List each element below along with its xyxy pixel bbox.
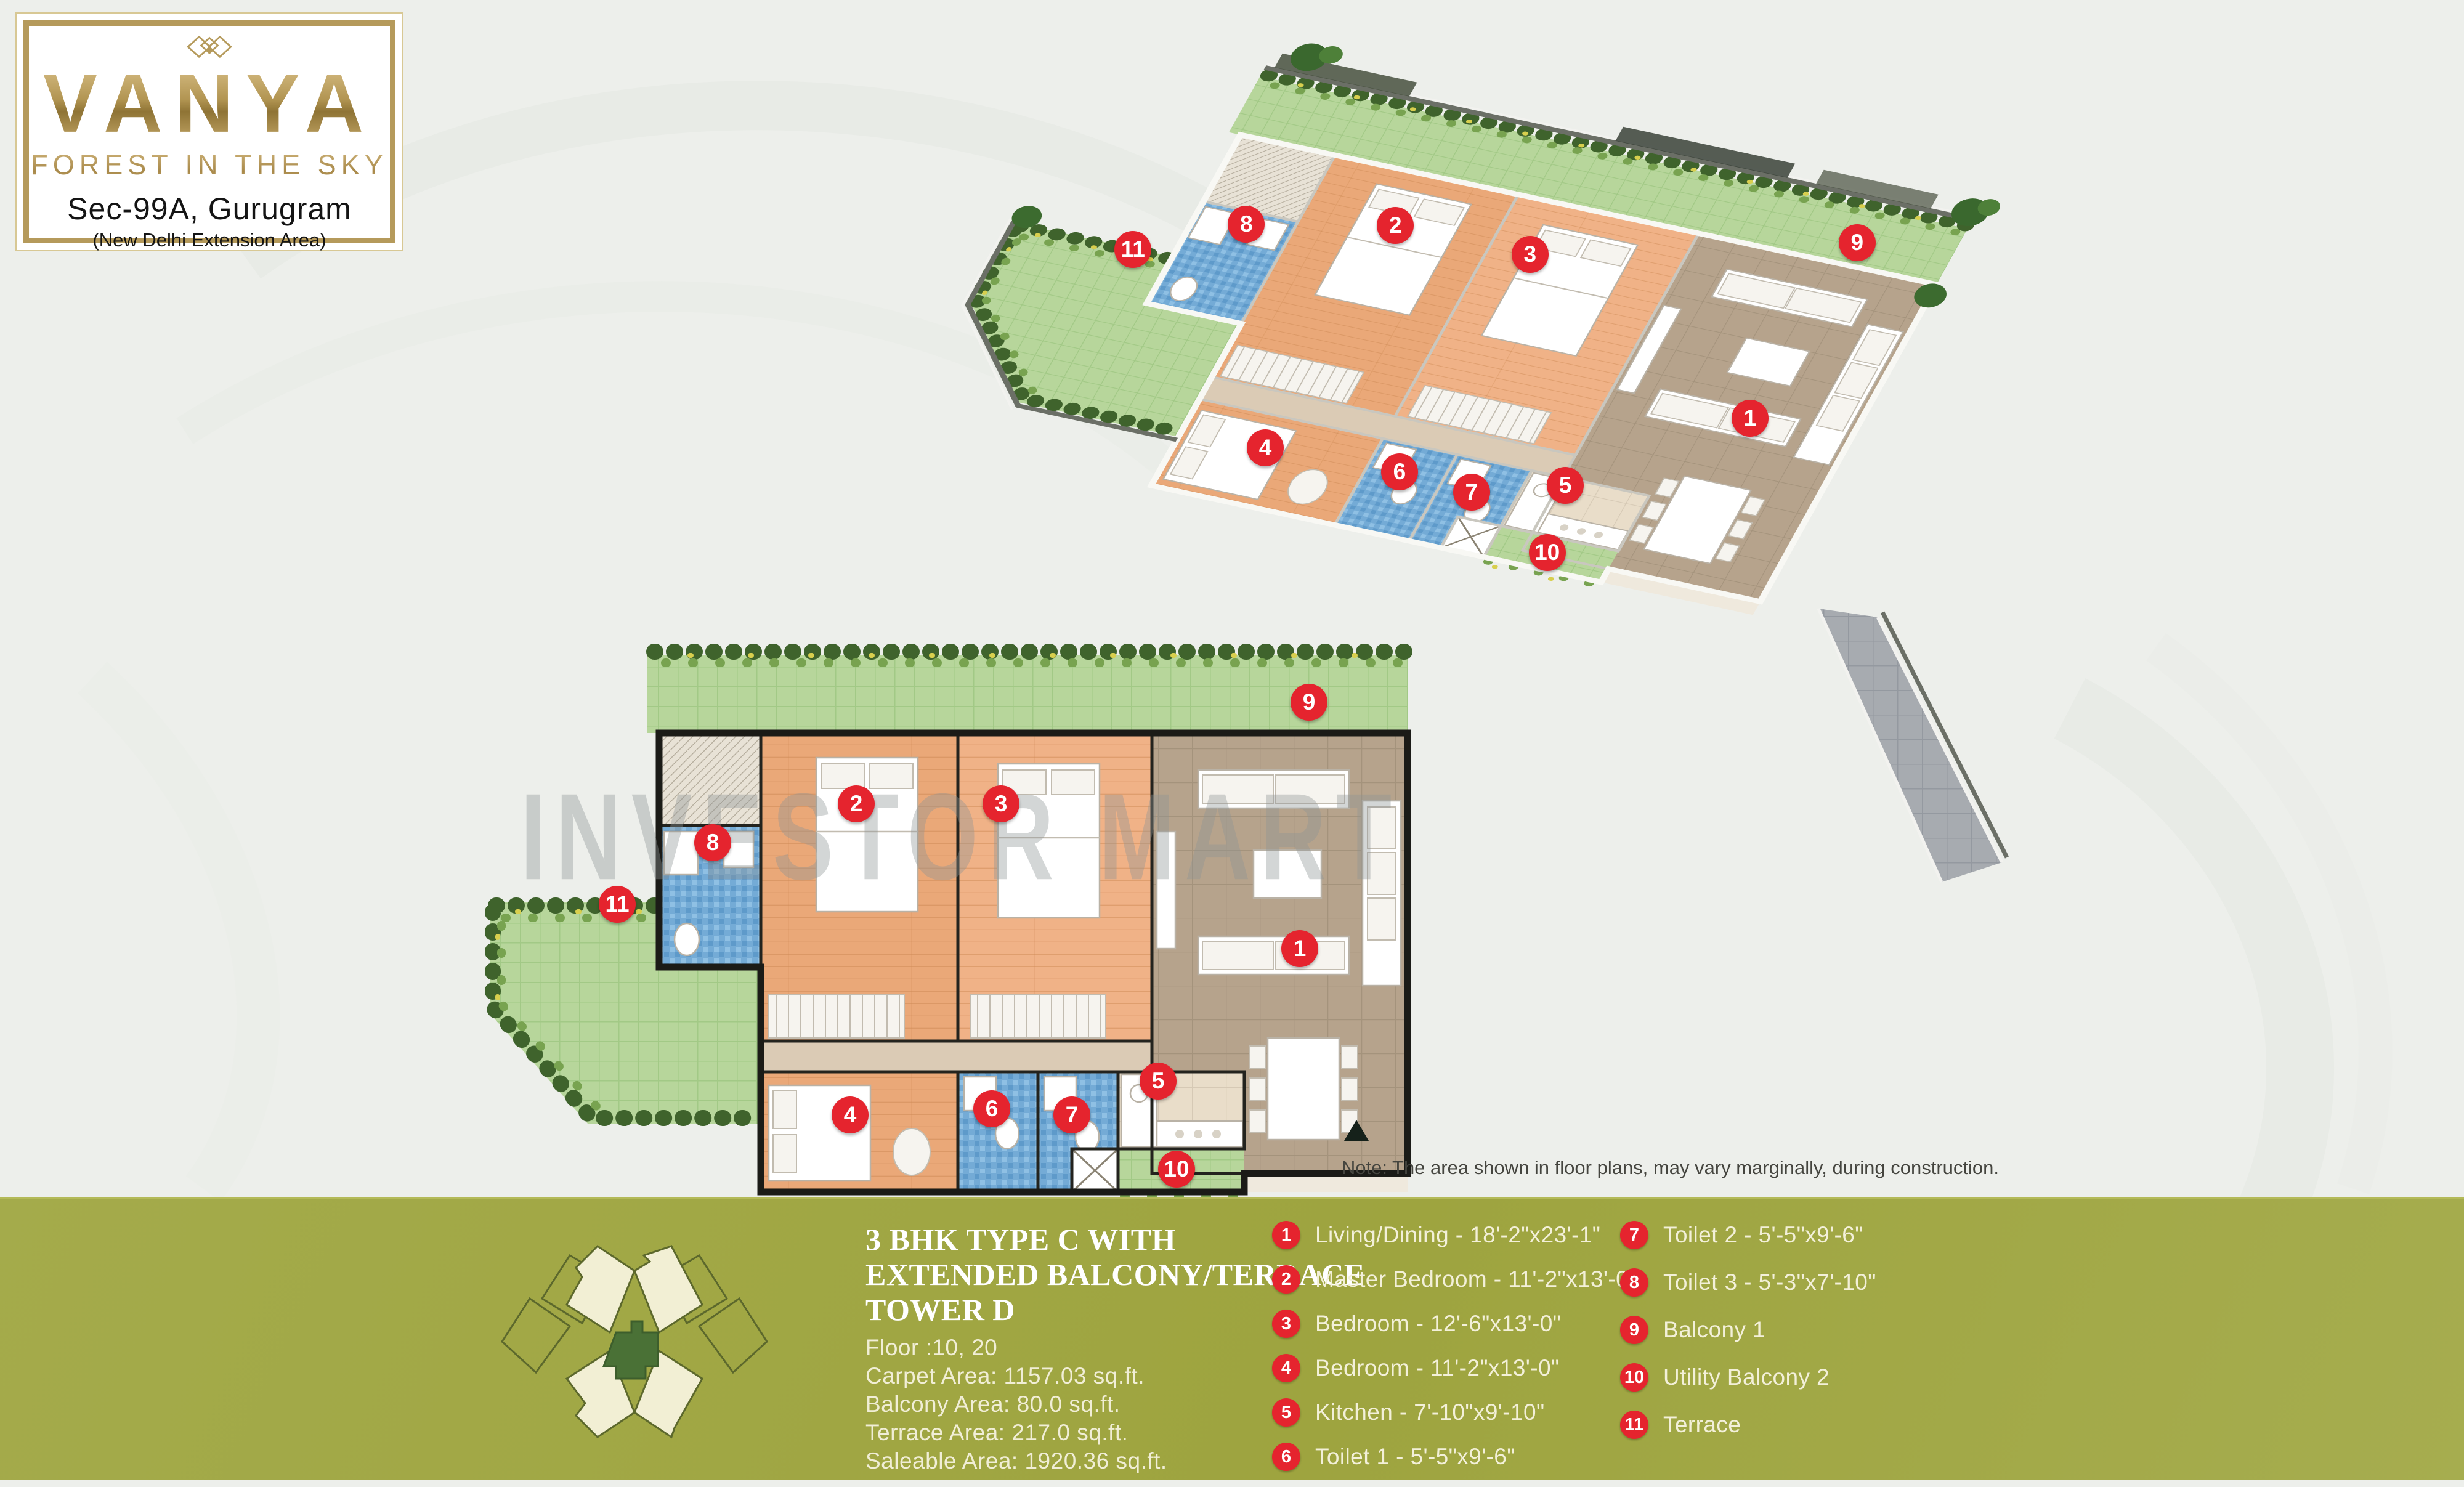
legend-number-badge: 9 [1620, 1316, 1648, 1344]
legend-number-badge: 11 [1620, 1411, 1648, 1439]
legend-column-1: 1 Living/Dining - 18'-2"x23'-1" 2 Master… [1272, 1221, 1637, 1487]
brand-tagline: FOREST IN THE SKY [31, 149, 387, 181]
legend-label: Kitchen - 7'-10"x9'-10" [1315, 1400, 1545, 1425]
legend-label: Bedroom - 12'-6"x13'-0" [1315, 1311, 1561, 1337]
legend-item: 3 Bedroom - 12'-6"x13'-0" [1272, 1310, 1637, 1338]
legend-label: Terrace [1663, 1412, 1741, 1438]
plan3d-marker-6: 6 [1381, 453, 1418, 490]
legend-number-badge: 6 [1272, 1443, 1300, 1471]
vanya-diamond-logo-icon [114, 34, 305, 59]
plan2d-marker-3: 3 [983, 785, 1019, 822]
legend-label: Toilet 1 - 5'-5"x9'-6" [1315, 1444, 1515, 1470]
plan3d-marker-10: 10 [1529, 534, 1566, 571]
project-location: Sec-99A, Gurugram [67, 191, 352, 227]
tower-key-plan-icon [496, 1218, 773, 1465]
legend-item: 4 Bedroom - 11'-2"x13'-0" [1272, 1354, 1637, 1382]
legend-label: Balcony 1 [1663, 1317, 1765, 1343]
legend-number-badge: 4 [1272, 1354, 1300, 1382]
plan2d-marker-9: 9 [1291, 684, 1327, 721]
plan3d-marker-1: 1 [1732, 400, 1769, 437]
legend-number-badge: 7 [1620, 1221, 1648, 1249]
legend-number-badge: 8 [1620, 1268, 1648, 1297]
legend-item: 1 Living/Dining - 18'-2"x23'-1" [1272, 1221, 1637, 1249]
legend-label: Bedroom - 11'-2"x13'-0" [1315, 1355, 1559, 1381]
plan2d-marker-10: 10 [1158, 1151, 1195, 1188]
legend-label: Utility Balcony 2 [1663, 1364, 1830, 1390]
legend-item: 11 Terrace [1620, 1411, 1876, 1439]
legend-item: 6 Toilet 1 - 5'-5"x9'-6" [1272, 1443, 1637, 1471]
plan2d-marker-2: 2 [838, 785, 875, 822]
legend-number-badge: 3 [1272, 1310, 1300, 1338]
legend-label: Living/Dining - 18'-2"x23'-1" [1315, 1222, 1600, 1248]
legend-item: 2 Master Bedroom - 11'-2"x13'-0" [1272, 1265, 1637, 1294]
plan3d-marker-3: 3 [1512, 236, 1549, 273]
plan3d-marker-5: 5 [1547, 467, 1584, 504]
plan3d-marker-2: 2 [1377, 207, 1414, 244]
brand-name: VANYA [43, 62, 376, 145]
legend-item: 8 Toilet 3 - 5'-3"x7'-10" [1620, 1268, 1876, 1297]
investor-mart-watermark: INVESTOR MART [511, 767, 1411, 909]
info-band: 3 BHK TYPE C WITH EXTENDED BALCONY/TERRA… [0, 1197, 2464, 1480]
legend-label: Toilet 3 - 5'-3"x7'-10" [1663, 1270, 1876, 1295]
legend-label: Master Bedroom - 11'-2"x13'-0" [1315, 1266, 1637, 1292]
plan2d-marker-7: 7 [1053, 1096, 1090, 1133]
plan3d-marker-11: 11 [1114, 231, 1151, 268]
project-sublocation: (New Delhi Extension Area) [92, 229, 326, 251]
legend-number-badge: 1 [1272, 1221, 1300, 1249]
legend-item: 5 Kitchen - 7'-10"x9'-10" [1272, 1398, 1637, 1427]
legend-column-2: 7 Toilet 2 - 5'-5"x9'-6" 8 Toilet 3 - 5'… [1620, 1221, 1876, 1458]
legend-number-badge: 2 [1272, 1265, 1300, 1294]
legend-number-badge: 10 [1620, 1363, 1648, 1392]
legend-item: 9 Balcony 1 [1620, 1316, 1876, 1344]
plan2d-marker-6: 6 [973, 1090, 1010, 1127]
plan3d-marker-9: 9 [1839, 224, 1876, 261]
legend-item: 7 Toilet 2 - 5'-5"x9'-6" [1620, 1221, 1876, 1249]
disclaimer-note: Note: The area shown in floor plans, may… [1232, 1157, 1999, 1179]
legend-label: Toilet 2 - 5'-5"x9'-6" [1663, 1222, 1863, 1248]
plan2d-marker-5: 5 [1140, 1063, 1177, 1100]
plan3d-marker-4: 4 [1247, 429, 1284, 466]
plan3d-marker-7: 7 [1453, 474, 1490, 511]
plan3d-marker-8: 8 [1228, 206, 1265, 243]
plan2d-marker-11: 11 [599, 886, 636, 923]
brand-logo-box: VANYA FOREST IN THE SKY Sec-99A, Gurugra… [15, 12, 403, 251]
floor-plan-2d [490, 652, 1408, 1201]
plan2d-marker-8: 8 [694, 824, 731, 861]
plan2d-marker-4: 4 [832, 1096, 869, 1133]
plan2d-marker-1: 1 [1281, 930, 1318, 967]
legend-number-badge: 5 [1272, 1398, 1300, 1427]
legend-item: 10 Utility Balcony 2 [1620, 1363, 1876, 1392]
entrance-arrow [1344, 1120, 1369, 1141]
page: INVESTOR MART VANYA FOREST IN THE SKY Se… [0, 0, 2464, 1478]
